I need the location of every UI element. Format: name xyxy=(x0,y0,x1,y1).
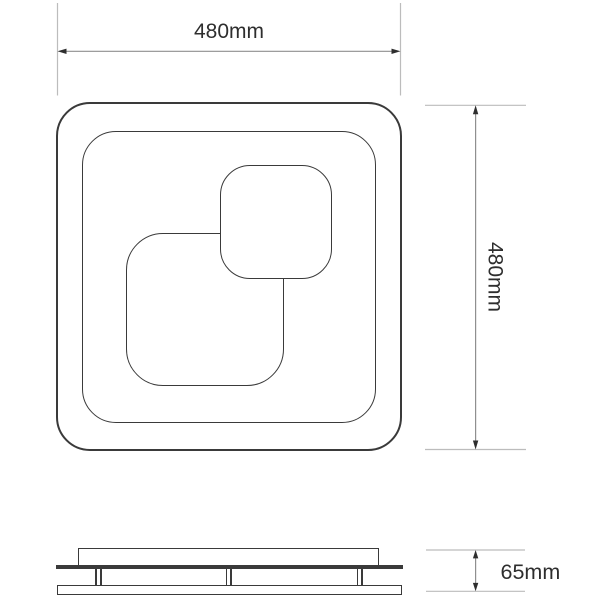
width-dimension-label: 480mm xyxy=(169,21,289,42)
side-view-standoff xyxy=(361,569,363,585)
height-dimension-label: 480mm xyxy=(484,242,505,312)
arrowhead-up xyxy=(473,550,478,558)
side-view-standoff xyxy=(95,569,97,585)
arrowhead-right xyxy=(392,49,401,54)
arrowhead-up xyxy=(473,105,478,114)
side-view-body xyxy=(78,548,379,567)
side-view-standoff xyxy=(100,569,102,585)
side-view-standoff xyxy=(357,569,359,585)
width-dimension xyxy=(58,3,401,96)
side-view-base-plate xyxy=(57,585,402,596)
arrowhead-down xyxy=(473,583,478,591)
height-dimension xyxy=(425,105,526,449)
arrowhead-left xyxy=(58,49,67,54)
side-view-standoff xyxy=(226,569,228,585)
depth-dimension-label: 65mm xyxy=(501,562,561,584)
arrowhead-down xyxy=(473,441,478,450)
light-module-upper-right xyxy=(220,165,332,279)
dimension-drawing: 480mm 480mm 65mm xyxy=(0,0,600,600)
side-view-standoff xyxy=(230,569,232,585)
